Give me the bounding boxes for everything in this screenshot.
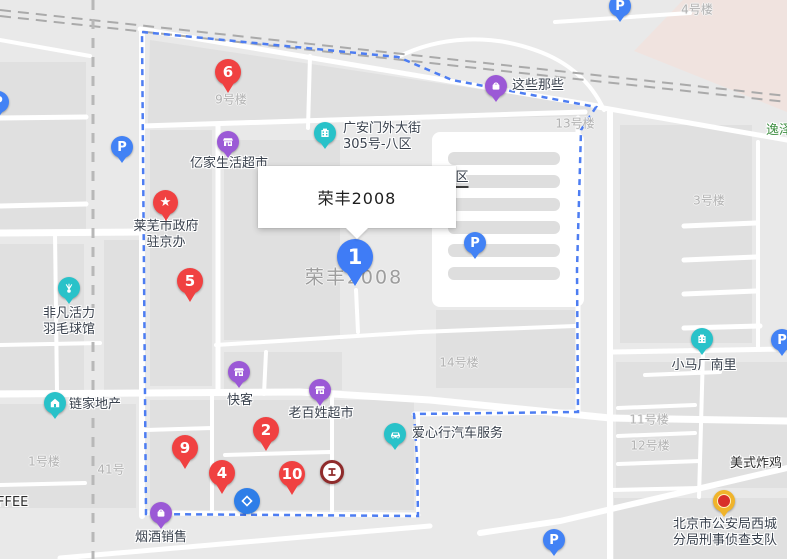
poi-label-line2: 羽毛球馆 — [43, 322, 95, 338]
handbag-icon — [490, 80, 502, 92]
car-icon — [389, 428, 402, 441]
marker-tail — [719, 510, 729, 517]
building-label-3: 3号楼 — [693, 192, 725, 209]
marker-tail — [286, 485, 298, 495]
poi-marker-tobacco-shop[interactable] — [150, 502, 172, 529]
marker-number: 1 — [337, 239, 373, 275]
star-icon: ★ — [153, 190, 178, 215]
handbag-icon — [155, 507, 167, 519]
poi-label-line2: 驻京办 — [133, 235, 198, 251]
poi-label-tobacco-shop: 烟酒销售 — [135, 530, 187, 546]
marker-tail — [179, 459, 191, 469]
poi-label-lianjia: 链家地产 — [69, 397, 121, 413]
poi-marker-badminton-hall[interactable] — [58, 277, 80, 304]
poi-label-line1: 北京市公安局西城 — [673, 517, 777, 533]
marker-tail — [615, 15, 625, 22]
marker-tail — [777, 349, 787, 356]
storefront-icon — [233, 366, 245, 378]
parking-marker[interactable]: P — [464, 232, 486, 259]
marker-tail — [347, 273, 363, 286]
building-label-12: 12号楼 — [630, 437, 669, 454]
marker-tail — [491, 95, 501, 102]
parking-marker[interactable]: P — [771, 329, 787, 356]
poi-marker-lianjia[interactable] — [44, 392, 66, 419]
poi-label-kuaike: 快客 — [227, 393, 253, 409]
poi-label-laobaixing-market: 老百姓超市 — [288, 406, 353, 422]
marker-tail — [184, 292, 196, 302]
building-label-9: 9号楼 — [215, 91, 247, 108]
poi-label-line1: 非凡活力 — [43, 306, 95, 322]
marker-tail — [216, 484, 228, 494]
marker-tail — [156, 522, 166, 529]
marker-number: 9 — [172, 435, 198, 461]
poi-label-laiwu-office: 莱芜市政府 驻京办 — [133, 219, 198, 251]
red-marker-6[interactable]: 6 — [215, 59, 241, 93]
building-label-14: 14号楼 — [439, 354, 478, 371]
building-label-41: 41号 — [97, 461, 124, 478]
marker-tail — [549, 549, 559, 556]
marker-number: 4 — [209, 460, 235, 486]
building-label-11: 11号楼 — [629, 411, 668, 428]
info-window-pointer — [346, 228, 368, 239]
marker-number: 6 — [215, 59, 241, 85]
marker-tail — [222, 83, 234, 93]
poi-label-badminton-hall: 非凡活力 羽毛球馆 — [43, 306, 95, 338]
poi-label-guanganmen: 广安门外大街 305号-八区 — [343, 121, 421, 153]
poi-label-line1: 广安门外大街 — [343, 121, 421, 137]
poi-label-yize-partial: 逸泽 — [766, 123, 787, 139]
bank-marker-blue[interactable] — [234, 488, 260, 514]
building-icon — [319, 127, 331, 139]
marker-tail — [0, 111, 3, 118]
poi-marker-zhexie-naxie[interactable] — [485, 75, 507, 102]
poi-label-line2: 305号-八区 — [343, 137, 421, 153]
building-label-4: 4号楼 — [681, 1, 713, 18]
bank-marker-icbc[interactable] — [320, 460, 344, 484]
red-marker-5[interactable]: 5 — [177, 268, 203, 302]
marker-tail — [117, 156, 127, 163]
poi-label-qu-partial: 区 — [455, 170, 468, 186]
red-marker-9[interactable]: 9 — [172, 435, 198, 469]
poi-marker-police-bureau[interactable] — [713, 490, 735, 517]
marker-number: 5 — [177, 268, 203, 294]
marker-tail — [390, 443, 400, 450]
poi-marker-xiaomachang[interactable] — [691, 328, 713, 355]
poi-marker-yijia-market[interactable] — [217, 131, 239, 158]
poi-label-xiaomachang: 小马厂南里 — [671, 358, 736, 374]
parking-icon: P — [771, 329, 787, 351]
icbc-logo-icon — [326, 466, 338, 478]
marker-tail — [64, 297, 74, 304]
poi-label-police-bureau: 北京市公安局西城 分局刑事侦查支队 — [673, 517, 777, 549]
building-label-13: 13号楼 — [555, 115, 594, 132]
marker-number: 2 — [253, 417, 279, 443]
parking-icon: P — [543, 529, 565, 551]
red-marker-2[interactable]: 2 — [253, 417, 279, 451]
parking-marker-clipped[interactable]: P — [0, 91, 9, 118]
marker-tail — [470, 252, 480, 259]
poi-marker-laiwu-office[interactable]: ★ — [153, 190, 178, 221]
parking-icon: P — [464, 232, 486, 254]
poi-label-line2: 分局刑事侦查支队 — [673, 533, 777, 549]
parking-marker[interactable]: P — [111, 136, 133, 163]
storefront-icon — [314, 384, 326, 396]
poi-label-zhexie-naxie: 这些那些 — [512, 78, 564, 94]
poi-marker-guanganmen[interactable] — [314, 122, 336, 149]
marker-tail — [50, 412, 60, 419]
poi-label-aixinxing-auto: 爱心行汽车服务 — [412, 426, 503, 442]
info-window[interactable]: 荣丰2008 — [258, 166, 456, 228]
marker-tail — [320, 142, 330, 149]
police-badge-icon — [717, 494, 731, 508]
shuttlecock-icon — [63, 282, 75, 294]
house-icon — [49, 397, 61, 409]
main-marker-rongfeng2008[interactable]: 1 — [337, 239, 373, 286]
parking-marker[interactable]: P — [543, 529, 565, 556]
building-label-1: 1号楼 — [28, 453, 60, 470]
poi-marker-kuaike[interactable] — [228, 361, 250, 388]
marker-tail — [234, 381, 244, 388]
bank-logo-icon — [240, 494, 254, 508]
red-marker-4[interactable]: 4 — [209, 460, 235, 494]
parking-icon: P — [111, 136, 133, 158]
poi-label-line1: 莱芜市政府 — [133, 219, 198, 235]
poi-label-coffee-partial: FFEE — [0, 495, 28, 511]
poi-label-fried-chicken: 美式炸鸡 — [730, 456, 782, 472]
poi-marker-laobaixing-market[interactable] — [309, 379, 331, 406]
marker-tail — [315, 399, 325, 406]
parking-icon: P — [0, 91, 9, 113]
poi-marker-aixinxing-auto[interactable] — [384, 423, 406, 450]
poi-label-yijia-market: 亿家生活超市 — [190, 156, 268, 172]
marker-tail — [161, 213, 171, 221]
marker-number: 10 — [279, 461, 305, 487]
map-canvas[interactable]: 9号楼 4号楼 13号楼 3号楼 14号楼 11号楼 12号楼 1号楼 41号 … — [0, 0, 787, 559]
marker-tail — [223, 151, 233, 158]
building-icon — [696, 333, 708, 345]
red-marker-10[interactable]: 10 — [279, 461, 305, 495]
marker-tail — [260, 441, 272, 451]
marker-tail — [697, 348, 707, 355]
parking-marker[interactable]: P — [609, 0, 631, 22]
storefront-icon — [222, 136, 234, 148]
info-window-title: 荣丰2008 — [318, 185, 397, 209]
